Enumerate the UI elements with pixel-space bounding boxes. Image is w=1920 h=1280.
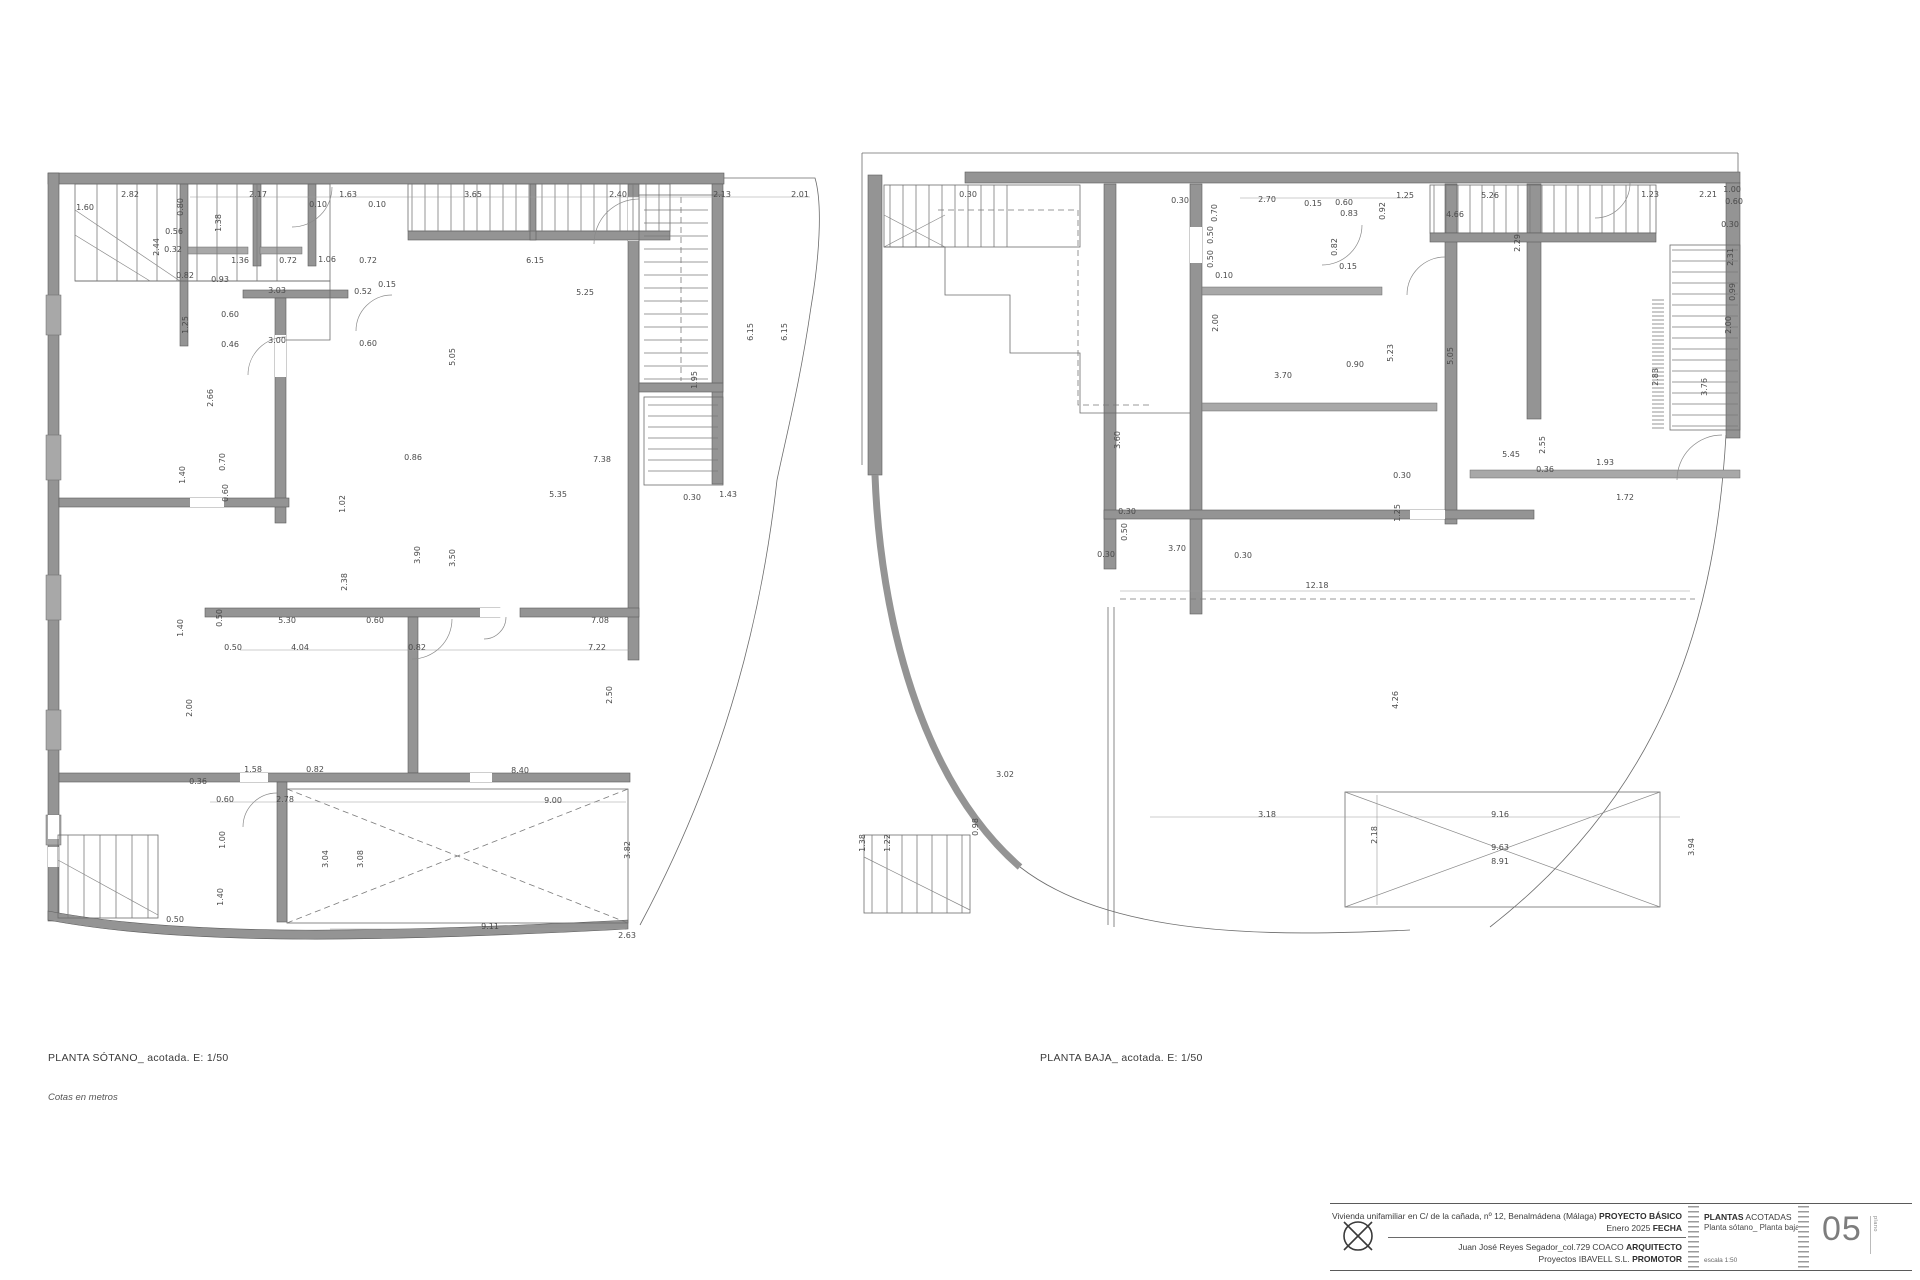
floorplan-sotano-drawing: 2.821.602.171.633.652.402.132.011.382.44… <box>40 135 830 950</box>
promoter-tag: PROMOTOR <box>1632 1254 1682 1264</box>
dimension-label: 1.38 <box>214 214 223 232</box>
dimension-label: 3.82 <box>623 841 632 859</box>
dimension-label: 1.25 <box>1396 191 1414 200</box>
door-arc <box>484 617 506 639</box>
dimension-label: 1.40 <box>216 888 225 906</box>
dimension-label: 3.03 <box>268 286 286 295</box>
dimension-label: 0.82 <box>176 271 194 280</box>
dimension-label: 4.04 <box>291 643 309 652</box>
dimension-label: 0.50 <box>1206 226 1215 244</box>
wall-left-curve <box>875 475 1020 867</box>
dimension-label: 5.45 <box>1502 450 1520 459</box>
dimension-label: 0.83 <box>1340 209 1358 218</box>
dimension-label: 0.36 <box>1536 465 1554 474</box>
stair-topleft-outline <box>884 185 1080 247</box>
plan1-note: Cotas en metros <box>48 1092 118 1103</box>
door-arc <box>356 295 392 331</box>
wall-303 <box>243 290 348 298</box>
wall-room-c <box>308 184 316 266</box>
dimension-label: 2.38 <box>340 573 349 591</box>
stair-bottomleft-outline <box>58 835 158 918</box>
dimension-label: 1.23 <box>1641 190 1659 199</box>
dimension-label: 2.13 <box>713 190 731 199</box>
floorplan-sotano: 2.821.602.171.633.652.402.132.011.382.44… <box>40 135 830 955</box>
dimension-label: 0.86 <box>404 453 422 462</box>
dimension-label: 1.58 <box>244 765 262 774</box>
dimension-label: 2.70 <box>1258 195 1276 204</box>
stair-right-hatch <box>1652 300 1664 428</box>
wall-low-h1b <box>520 608 639 617</box>
dimension-label: 2.82 <box>121 190 139 199</box>
wall-corridor-divider <box>530 184 536 240</box>
dimension-label: 9.00 <box>544 796 562 805</box>
dimension-label: 0.30 <box>959 190 977 199</box>
project-tag: PROYECTO BÁSICO <box>1599 1211 1682 1221</box>
dimension-label: 0.10 <box>1215 271 1233 280</box>
dimension-label: 0.30 <box>1118 507 1136 516</box>
dimension-label: 2.21 <box>1699 190 1717 199</box>
stair-shaft-low-treads <box>648 405 718 471</box>
pilaster <box>46 295 61 335</box>
closet <box>260 247 302 254</box>
stair-topleft-outline <box>75 184 330 281</box>
dimension-label: 1.06 <box>318 255 336 264</box>
dimension-label: 1.00 <box>1723 185 1741 194</box>
dimension-label: 0.30 <box>1721 220 1739 229</box>
dimension-label: 2.83 <box>1651 368 1660 386</box>
dimension-label: 1.93 <box>1596 458 1614 467</box>
dimension-label: 2.29 <box>1513 234 1522 252</box>
dimension-label: 0.60 <box>221 484 230 502</box>
dimension-label: 0.98 <box>971 818 980 836</box>
dimension-label: 0.30 <box>1171 196 1189 205</box>
dimension-label: 5.26 <box>1481 191 1499 200</box>
dimension-label: 0.70 <box>218 453 227 471</box>
dimension-label: 3.70 <box>1274 371 1292 380</box>
dimension-label: 7.38 <box>593 455 611 464</box>
project-address: Vivienda unifamiliar en C/ de la cañada,… <box>1332 1211 1599 1221</box>
dimension-label: 0.72 <box>359 256 377 265</box>
wall-840 <box>59 773 630 782</box>
dimension-label: 2.00 <box>1211 314 1220 332</box>
stair-shaft-low-outline <box>644 397 723 485</box>
wall-corridor-bar <box>408 231 670 240</box>
stair-break <box>75 235 150 281</box>
dimension-label: 0.15 <box>1339 262 1357 271</box>
dimension-label: 1.22 <box>883 834 892 852</box>
wall-v4 <box>1527 184 1541 419</box>
stair-step-boundary <box>884 247 1190 413</box>
architect-name: Juan José Reyes Segador_col.729 COACO <box>1458 1242 1626 1252</box>
dimension-label: 3.70 <box>1168 544 1186 553</box>
stair-corridor-treads <box>1434 185 1650 233</box>
dimension-label: 0.50 <box>224 643 242 652</box>
dimension-label: 0.60 <box>216 795 234 804</box>
wall-bottom-curved <box>48 911 628 939</box>
dimension-label: 1.36 <box>231 256 249 265</box>
dimension-label: 0.82 <box>306 765 324 774</box>
dimension-label: 2.78 <box>276 795 294 804</box>
dimension-label: 3.18 <box>1258 810 1276 819</box>
floorplan-baja-drawing: 0.300.300.702.700.150.600.830.921.255.26… <box>850 135 1750 940</box>
door-gap <box>190 498 224 507</box>
door-gap <box>480 608 506 617</box>
dimension-label: 0.30 <box>683 493 701 502</box>
door-gap <box>1190 227 1202 263</box>
dimension-label: 0.56 <box>165 227 183 236</box>
dimension-label: 5.30 <box>278 616 296 625</box>
dimension-label: 3.50 <box>448 549 457 567</box>
dimension-label: 2.44 <box>152 238 161 256</box>
dimension-label: 1.43 <box>719 490 737 499</box>
dimension-label: 3.02 <box>996 770 1014 779</box>
site-boundary-right <box>640 480 777 925</box>
dimension-label: 0.90 <box>1346 360 1364 369</box>
pilaster <box>46 575 61 620</box>
door-gap <box>240 773 268 782</box>
stair-break <box>58 860 158 915</box>
dimension-label: 0.60 <box>359 339 377 348</box>
dimension-label: 0.60 <box>366 616 384 625</box>
window-gap <box>48 815 59 839</box>
dimension-label: 0.82 <box>1330 238 1339 256</box>
window-gap <box>48 847 59 867</box>
dimension-label: 2.55 <box>1538 436 1547 454</box>
dimension-label: 0.50 <box>215 609 224 627</box>
dimension-label: 1.00 <box>218 831 227 849</box>
dimension-label: 1.25 <box>181 316 190 334</box>
architect-tag: ARQUITECTO <box>1626 1242 1682 1252</box>
door-arc <box>1322 225 1362 265</box>
dimension-label: 0.50 <box>166 915 184 924</box>
wall-top <box>965 172 1740 183</box>
dimension-label: 3.08 <box>356 850 365 868</box>
dimension-label: 8.91 <box>1491 857 1509 866</box>
dimension-label: 3.90 <box>413 546 422 564</box>
project-date: Enero 2025 <box>1606 1223 1652 1233</box>
dimension-label: 5.05 <box>448 348 457 366</box>
dimension-label: 0.80 <box>176 198 185 216</box>
dimension-label: 6.15 <box>746 323 755 341</box>
dimension-label: 4.26 <box>1391 691 1400 709</box>
dimension-label: 0.60 <box>1725 197 1743 206</box>
dimension-label: 0.70 <box>1210 204 1219 222</box>
dimension-label: 5.25 <box>576 288 594 297</box>
stair-bottomleft-treads <box>68 835 148 918</box>
dimension-label: 2.17 <box>249 190 267 199</box>
stair-corridor-bar <box>1430 233 1656 242</box>
sheet-number-side: plano <box>1870 1216 1878 1254</box>
wall-left <box>868 175 882 475</box>
dimension-label: 0.32 <box>164 245 182 254</box>
site-boundary-bottom <box>1020 867 1410 933</box>
dimension-label: 5.23 <box>1386 344 1395 362</box>
dimension-label: 2.18 <box>1370 826 1379 844</box>
dimension-label: 1.72 <box>1616 493 1634 502</box>
titleblock-divider <box>1388 1237 1686 1238</box>
wall-h-d <box>1470 470 1740 478</box>
dimension-label: 2.63 <box>618 931 636 940</box>
dimension-label: 1.40 <box>176 619 185 637</box>
dimension-label: 12.18 <box>1306 581 1329 590</box>
dimension-label: 0.50 <box>1120 523 1129 541</box>
sheet-subtitle: Planta sótano_ Planta baja <box>1704 1223 1800 1232</box>
sheet-title-bold: PLANTAS <box>1704 1212 1744 1222</box>
dimension-label: 0.72 <box>279 256 297 265</box>
sheet-number: 05 <box>1822 1210 1862 1249</box>
dimension-label: 0.15 <box>378 280 396 289</box>
title-block-left: Vivienda unifamiliar en C/ de la cañada,… <box>1330 1204 1686 1270</box>
dimension-label: 0.82 <box>408 643 426 652</box>
dimension-label: 2.00 <box>185 699 194 717</box>
dimension-label: 4.66 <box>1446 210 1464 219</box>
dimension-label: 9.63 <box>1491 843 1509 852</box>
site-boundary-topright <box>720 178 819 480</box>
sheet-title-rest: ACOTADAS <box>1744 1212 1792 1222</box>
door-arc <box>1407 257 1445 295</box>
dimension-label: 0.92 <box>1378 202 1387 220</box>
wall-h-c <box>1104 510 1534 519</box>
dimension-label: 0.60 <box>221 310 239 319</box>
dimension-label: 1.40 <box>178 466 187 484</box>
title-block: Vivienda unifamiliar en C/ de la cañada,… <box>1330 1203 1912 1271</box>
dimension-label: 1.63 <box>339 190 357 199</box>
dimension-label: 1.25 <box>1393 504 1402 522</box>
dimension-label: 1.38 <box>858 834 867 852</box>
dimension-label: 9.11 <box>481 922 499 931</box>
dimension-label: 2.01 <box>791 190 809 199</box>
dimension-label: 3.00 <box>268 336 286 345</box>
dimension-label: 0.36 <box>189 777 207 786</box>
dimension-label: 3.65 <box>464 190 482 199</box>
wall-left <box>48 173 59 921</box>
wall-low-h1 <box>205 608 500 617</box>
dimension-label: 5.05 <box>1446 347 1455 365</box>
dimension-label: 1.60 <box>76 203 94 212</box>
dimension-label: 0.15 <box>1304 199 1322 208</box>
floorplan-baja: 0.300.300.702.700.150.600.830.921.255.26… <box>850 135 1750 945</box>
dimension-label: 2.66 <box>206 389 215 407</box>
dimension-label: 0.50 <box>1206 250 1215 268</box>
dimension-label: 3.60 <box>1113 431 1122 449</box>
stair-corridor-outline <box>1430 185 1656 233</box>
wall-right-core <box>628 184 639 660</box>
dimension-label: 0.10 <box>309 200 327 209</box>
dimension-label: 2.31 <box>1726 248 1735 266</box>
wall-low-v <box>408 617 418 773</box>
dimension-label: 0.30 <box>1097 550 1115 559</box>
dimension-label: 0.52 <box>354 287 372 296</box>
dimension-label: 5.35 <box>549 490 567 499</box>
hatch-strip <box>1798 1206 1809 1268</box>
dimension-label: 0.30 <box>1393 471 1411 480</box>
dimension-label: 3.94 <box>1687 838 1696 856</box>
hatch-strip <box>1688 1206 1699 1268</box>
dimension-label: 0.60 <box>1335 198 1353 207</box>
dimension-label: 1.95 <box>690 371 699 389</box>
dimension-label: 2.00 <box>1724 316 1733 334</box>
sheet-canvas: { "colors": {"wall":"#949494","line":"#6… <box>0 0 1920 1280</box>
north-symbol-icon <box>1338 1216 1378 1256</box>
dimension-label: 6.15 <box>780 323 789 341</box>
dimension-label: 0.99 <box>1728 283 1737 301</box>
promoter-name: Proyectos IBAVELL S.L. <box>1539 1254 1633 1264</box>
dimension-label: 6.15 <box>526 256 544 265</box>
wall-mid-h <box>59 498 289 507</box>
wall-h-a <box>1202 287 1382 295</box>
dimension-label: 0.93 <box>211 275 229 284</box>
dimension-label: 0.30 <box>1234 551 1252 560</box>
plan2-caption: PLANTA BAJA_ acotada. E: 1/50 <box>1040 1052 1203 1064</box>
dimension-label: 0.10 <box>368 200 386 209</box>
plan1-caption: PLANTA SÓTANO_ acotada. E: 1/50 <box>48 1052 229 1064</box>
title-block-sheetinfo: PLANTAS ACOTADAS Planta sótano_ Planta b… <box>1702 1204 1794 1270</box>
dimension-label: 9.16 <box>1491 810 1509 819</box>
door-gap <box>470 773 492 782</box>
wall-stairshaft-divider <box>639 383 723 392</box>
dimension-label: 0.46 <box>221 340 239 349</box>
pilaster <box>46 710 61 750</box>
wall-central <box>275 298 286 523</box>
wall-stairshaft-outer <box>712 184 723 484</box>
door-gap <box>1410 510 1445 519</box>
stair-topleft-treads <box>890 185 1007 247</box>
dimension-label: 2.40 <box>609 190 627 199</box>
dimension-label: 7.22 <box>588 643 606 652</box>
stair-path-dashed <box>938 210 1150 405</box>
dimension-label: 3.04 <box>321 850 330 868</box>
dimension-label: 1.02 <box>338 495 347 513</box>
date-tag: FECHA <box>1653 1223 1682 1233</box>
dimension-label: 3.76 <box>1700 378 1709 396</box>
door-arc <box>1595 183 1630 218</box>
wall-top <box>48 173 724 184</box>
dimension-label: 2.50 <box>605 686 614 704</box>
wall-h-b <box>1202 403 1437 411</box>
dimension-label: 8.40 <box>511 766 529 775</box>
sheet-scale: escala 1:50 <box>1704 1257 1737 1264</box>
door-arc <box>243 793 277 827</box>
pilaster <box>46 435 61 480</box>
dimension-label: 7.08 <box>591 616 609 625</box>
